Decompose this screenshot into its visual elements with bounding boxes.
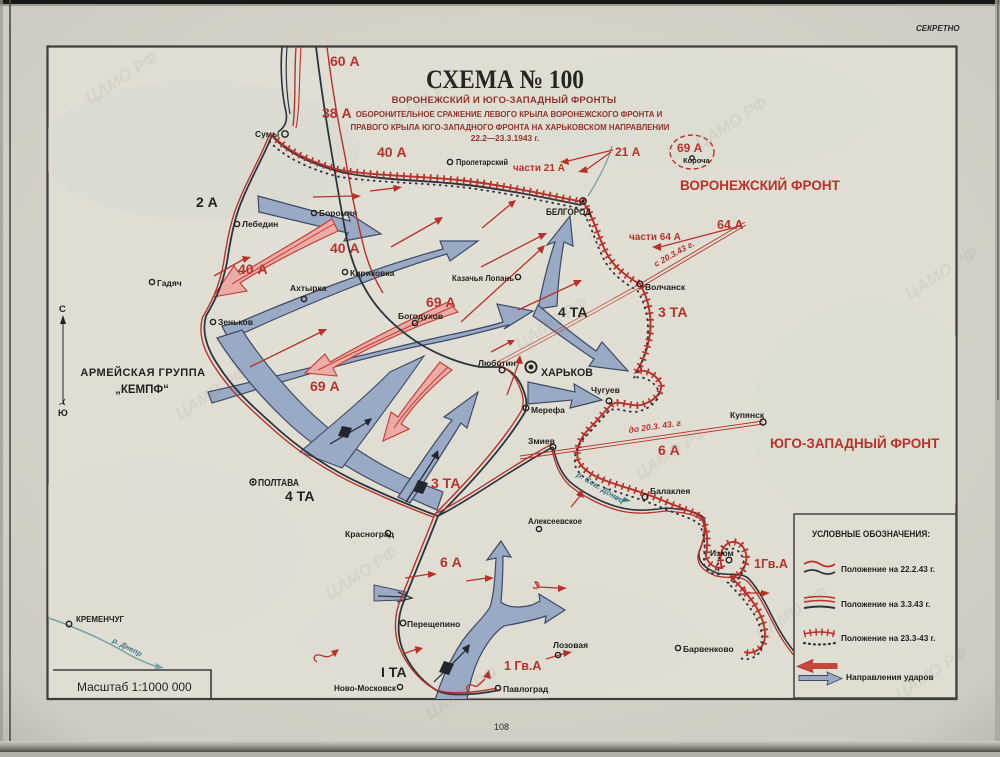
- svg-text:40 А: 40 А: [238, 261, 268, 277]
- svg-text:40 А: 40 А: [330, 240, 360, 256]
- svg-text:Сумы: Сумы: [255, 129, 279, 139]
- svg-text:УСЛОВНЫЕ ОБОЗНАЧЕНИЯ:: УСЛОВНЫЕ ОБОЗНАЧЕНИЯ:: [812, 529, 930, 539]
- svg-text:1Гв.А: 1Гв.А: [754, 557, 788, 571]
- svg-text:2 А: 2 А: [196, 194, 218, 210]
- svg-text:64 А: 64 А: [717, 218, 743, 232]
- svg-text:Положение на 3.3.43 г.: Положение на 3.3.43 г.: [841, 600, 930, 609]
- svg-text:69 А: 69 А: [310, 378, 340, 394]
- svg-text:69 А: 69 А: [426, 294, 456, 310]
- svg-text:Балаклея: Балаклея: [650, 486, 690, 496]
- svg-text:Купянск: Купянск: [730, 410, 765, 420]
- svg-text:Изюм: Изюм: [710, 548, 734, 558]
- svg-text:Богодухов: Богодухов: [398, 311, 443, 321]
- svg-text:Ново-Московск: Ново-Московск: [334, 683, 397, 693]
- svg-text:1 Гв.А: 1 Гв.А: [504, 659, 541, 673]
- svg-text:Барвенково: Барвенково: [683, 644, 734, 654]
- svg-text:Красноград: Красноград: [345, 529, 395, 539]
- svg-text:40 А: 40 А: [377, 144, 407, 160]
- svg-text:Пролетарский: Пролетарский: [456, 157, 508, 167]
- svg-text:СЕКРЕТНО: СЕКРЕТНО: [916, 24, 960, 33]
- svg-text:21 А: 21 А: [615, 145, 641, 159]
- svg-text:Кириковка: Кириковка: [350, 268, 395, 278]
- svg-text:Ахтырка: Ахтырка: [290, 283, 327, 293]
- svg-text:БЕЛГОРОД: БЕЛГОРОД: [546, 207, 591, 218]
- svg-text:6 А: 6 А: [440, 554, 462, 570]
- svg-text:КРЕМЕНЧУГ: КРЕМЕНЧУГ: [76, 614, 124, 624]
- svg-text:ХАРЬКОВ: ХАРЬКОВ: [541, 367, 593, 379]
- svg-text:38 А: 38 А: [322, 105, 352, 121]
- svg-text:60 А: 60 А: [330, 53, 360, 69]
- svg-text:Гадяч: Гадяч: [157, 278, 182, 288]
- svg-text:Боромля: Боромля: [319, 208, 357, 218]
- svg-text:Казачья Лопань: Казачья Лопань: [452, 273, 514, 283]
- svg-text:Перещепино: Перещепино: [407, 619, 460, 629]
- svg-text:Ю: Ю: [58, 408, 68, 419]
- svg-text:4 ТА: 4 ТА: [285, 488, 314, 504]
- svg-text:Масштаб 1:1000 000: Масштаб 1:1000 000: [77, 680, 192, 694]
- svg-text:Короча: Короча: [683, 156, 710, 165]
- svg-text:части 21 А: части 21 А: [513, 163, 565, 174]
- svg-text:Лебедин: Лебедин: [242, 219, 278, 229]
- svg-text:Люботин: Люботин: [478, 358, 516, 368]
- svg-text:Положение на 23.3-43 г.: Положение на 23.3-43 г.: [841, 634, 935, 643]
- svg-text:Змиев: Змиев: [528, 436, 555, 446]
- svg-text:Алексеевское: Алексеевское: [528, 516, 582, 526]
- svg-text:Лозовая: Лозовая: [553, 640, 588, 650]
- svg-text:Чугуев: Чугуев: [591, 385, 620, 395]
- svg-text:3 ТА: 3 ТА: [658, 304, 687, 320]
- svg-text:22.2—23.3.1943 г.: 22.2—23.3.1943 г.: [471, 133, 540, 143]
- svg-text:ЮГО-ЗАПАДНЫЙ ФРОНТ: ЮГО-ЗАПАДНЫЙ ФРОНТ: [770, 436, 940, 451]
- svg-text:С: С: [59, 304, 66, 315]
- svg-text:Положение на 22.2.43 г.: Положение на 22.2.43 г.: [841, 565, 935, 574]
- svg-text:„КЕМПФ“: „КЕМПФ“: [115, 384, 169, 396]
- svg-text:I ТА: I ТА: [381, 664, 407, 680]
- svg-text:3 ТА: 3 ТА: [431, 475, 460, 491]
- svg-text:Зеньков: Зеньков: [218, 317, 253, 327]
- svg-text:части 64 А: части 64 А: [629, 232, 681, 243]
- svg-text:Волчанск: Волчанск: [645, 282, 686, 292]
- svg-text:108: 108: [494, 722, 509, 732]
- svg-text:АРМЕЙСКАЯ ГРУППА: АРМЕЙСКАЯ ГРУППА: [80, 366, 205, 379]
- svg-text:ВОРОНЕЖСКИЙ ФРОНТ: ВОРОНЕЖСКИЙ ФРОНТ: [680, 178, 841, 193]
- svg-text:Мерефа: Мерефа: [531, 405, 565, 415]
- svg-text:Павлоград: Павлоград: [503, 684, 549, 694]
